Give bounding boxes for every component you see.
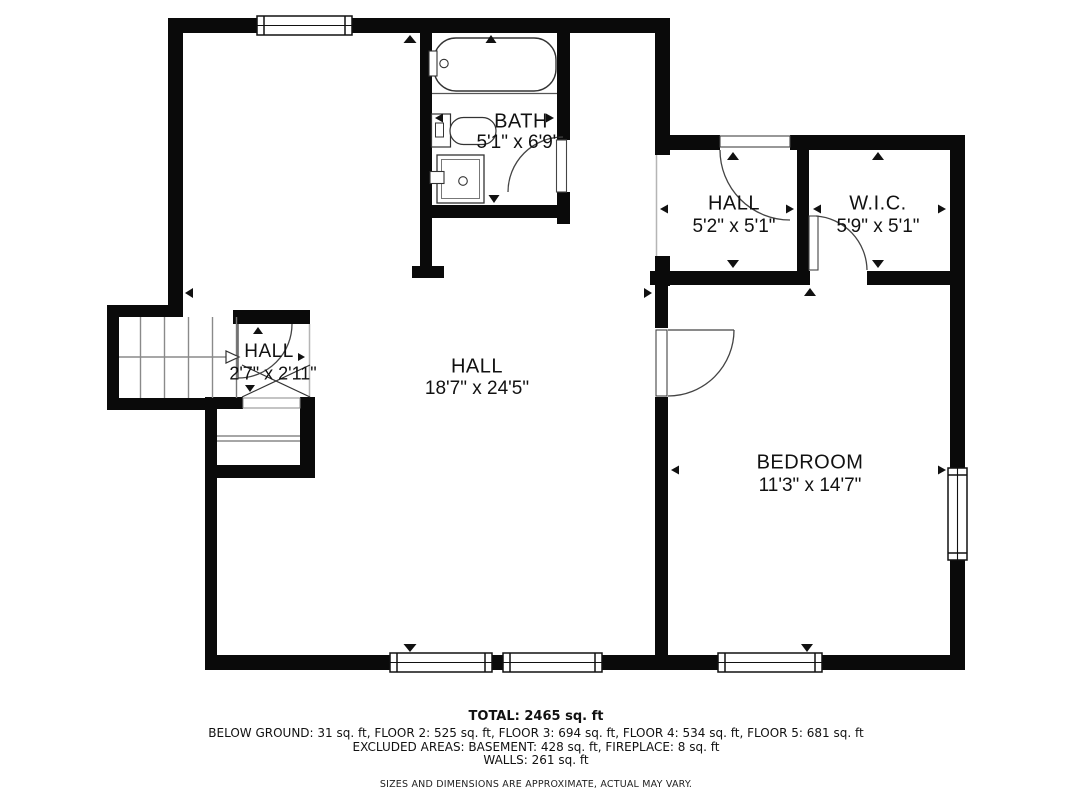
bathtub — [429, 38, 556, 91]
dim-arrow-up — [404, 35, 417, 43]
bathtub-faucet — [429, 51, 437, 76]
footer-walls: WALLS: 261 sq. ft — [0, 753, 1072, 767]
window-top — [257, 16, 352, 35]
dim-arrow-down — [489, 195, 500, 203]
wic-label: W.I.C. — [849, 193, 906, 216]
bedroom-label: BEDROOM — [757, 452, 864, 475]
footer-disclaimer: SIZES AND DIMENSIONS ARE APPROXIMATE, AC… — [0, 779, 1072, 790]
dim-arrow-down — [801, 644, 813, 652]
hall-stairs-dims: 2'7" x 2'11" — [229, 364, 316, 385]
toilet-flush — [436, 123, 444, 137]
wall-left-lower — [205, 398, 217, 670]
dim-arrow-right — [938, 466, 946, 475]
wall-stairbox-bottom — [107, 398, 217, 410]
window-bedroom-bottom — [718, 653, 822, 672]
bath-dims: 5'1" x 6'9" — [476, 132, 559, 154]
dim-arrow-up — [872, 152, 884, 160]
dim-arrow-right — [786, 205, 794, 214]
hall-stairs-label: HALL — [244, 341, 294, 363]
dim-arrow-left — [660, 205, 668, 214]
wic-dims: 5'9" x 5'1" — [836, 216, 919, 238]
footer-floors: BELOW GROUND: 31 sq. ft, FLOOR 2: 525 sq… — [0, 726, 1072, 740]
wall-topright-top — [655, 135, 965, 150]
window-bedroom-right — [948, 468, 967, 560]
dim-arrow-right — [938, 205, 946, 214]
hall-upper-label: HALL — [708, 193, 760, 216]
wall-closet-bottom — [205, 465, 315, 478]
footer-total: TOTAL: 2465 sq. ft — [0, 709, 1072, 724]
dim-arrow-up — [253, 327, 263, 334]
hall-upper-dims: 5'2" x 5'1" — [692, 216, 775, 238]
dim-arrow-right — [298, 353, 305, 361]
wall-stairbox-left — [107, 305, 119, 410]
dim-arrow-left — [813, 205, 821, 214]
dim-arrow-down — [404, 644, 417, 652]
wall-alcove-stub-upper — [655, 18, 670, 155]
floorplan-page: BATH 5'1" x 6'9" HALL 5'2" x 5'1" W.I.C.… — [0, 0, 1072, 804]
doors — [238, 136, 867, 396]
sink-faucet — [430, 172, 444, 184]
dim-arrow-left — [185, 288, 193, 298]
wall-right — [950, 135, 965, 670]
hall-main-dims: 18'7" x 24'5" — [425, 378, 529, 400]
hall-main-label: HALL — [451, 356, 503, 379]
closet-threshold — [243, 398, 300, 408]
window-bottom-left — [390, 653, 492, 672]
bathtub-faucet-knob — [440, 59, 448, 67]
dim-arrow-up — [804, 288, 816, 296]
bath-label: BATH — [494, 111, 548, 134]
dim-arrow-up — [727, 152, 739, 160]
dim-arrow-right — [644, 288, 652, 298]
wall-closet-top-left — [205, 397, 243, 409]
window-bottom-middle — [503, 653, 602, 672]
dim-arrow-down — [727, 260, 739, 268]
dim-arrow-down — [872, 260, 884, 268]
wall-closet-right — [300, 397, 315, 473]
sink-drain — [459, 177, 468, 186]
wall-hall-wic-divider — [797, 148, 809, 272]
windows — [257, 16, 967, 672]
wall-hall-stairs-top — [233, 310, 310, 324]
wall-bath-bottom — [420, 205, 560, 218]
dim-arrow-left — [671, 466, 679, 475]
door-gaps — [555, 134, 867, 397]
wall-topright-bottom — [650, 271, 965, 285]
bedroom-dims: 11'3" x 14'7" — [759, 475, 862, 497]
wall-bath-right-upper — [557, 18, 570, 140]
sink-vanity — [430, 155, 484, 203]
wall-left-upper — [168, 18, 183, 308]
footer-excluded: EXCLUDED AREAS: BASEMENT: 428 sq. ft, FI… — [0, 740, 1072, 754]
wall-top — [168, 18, 670, 33]
wall-bath-left-foot — [412, 266, 444, 278]
